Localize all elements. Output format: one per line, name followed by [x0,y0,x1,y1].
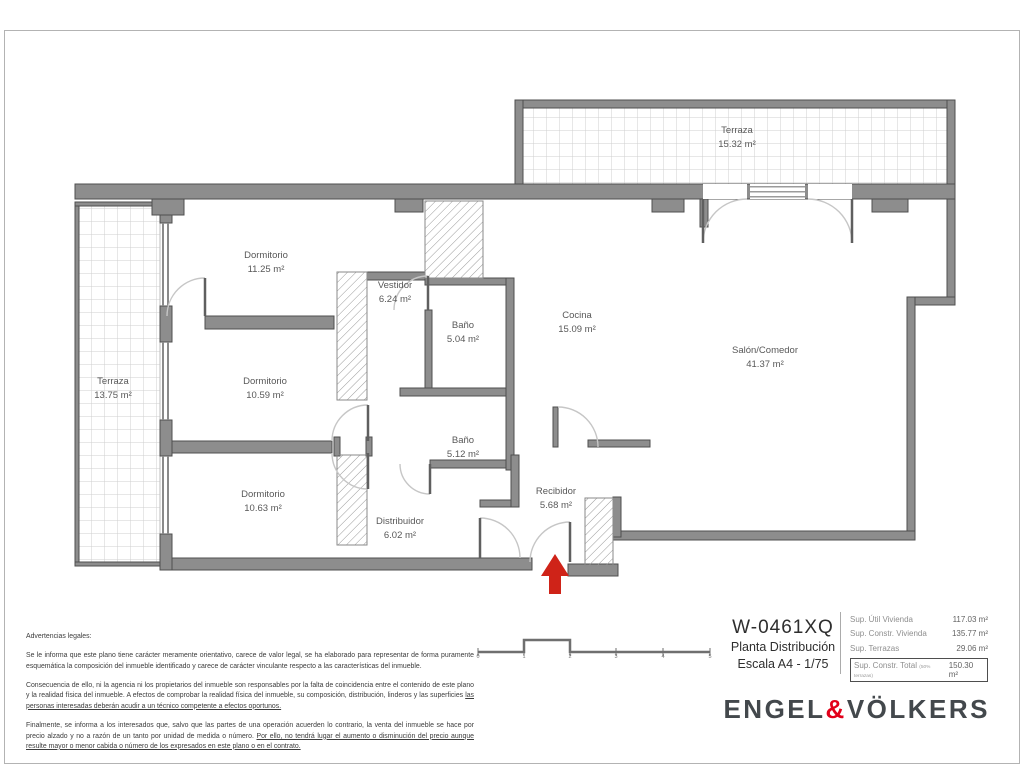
logo-ampersand: & [826,694,847,724]
room-label-dormitorio-1: Dormitorio11.25 m² [244,249,288,276]
legal-paragraph-3: Finalmente, se informa a los interesados… [26,721,474,752]
scale-tick-3: 3 [614,654,617,660]
scale-tick-2: 2 [568,654,571,660]
scale-bar-line [470,625,720,670]
surface-table: Sup. Útil Vivienda 117.03 m² Sup. Constr… [850,612,988,682]
scale-tick-1: 1 [522,654,525,660]
entrance-arrow-icon [541,554,569,594]
legal-paragraph-2: Consecuencia de ello, ni la agencia ni l… [26,681,474,712]
room-label-bano-1: Baño5.04 m² [447,319,479,346]
room-label-dormitorio-3: Dormitorio10.63 m² [241,488,285,515]
surface-row: Sup. Útil Vivienda 117.03 m² [850,612,988,627]
scale-tick-0: 0 [476,654,479,660]
scale-tick-4: 4 [661,654,664,660]
room-label-recibidor: Recibidor5.68 m² [536,485,576,512]
surface-row: Sup. Terrazas 29.06 m² [850,641,988,656]
door-leaves [205,199,852,562]
room-label-vestidor: Vestidor6.24 m² [378,279,412,306]
scale-bar: 0 1 2 3 4 5 [470,625,720,670]
legal-notices: Advertencias legales: Se le informa que … [26,632,474,761]
plan-scale: Escala A4 - 1/75 [700,656,866,673]
engel-volkers-logo: ENGEL&VÖLKERS [723,694,990,725]
plan-title: Planta Distribución [700,639,866,656]
page: Terraza15.32 m² Dormitorio11.25 m² Vesti… [0,0,1024,768]
room-label-salon: Salón/Comedor41.37 m² [732,344,798,371]
room-label-distribuidor: Distribuidor6.02 m² [376,515,424,542]
terrace-openings [703,184,852,199]
info-divider [840,612,841,674]
property-info: W-0461XQ Planta Distribución Escala A4 -… [700,616,866,673]
surface-row: Sup. Constr. Vivienda 135.77 m² [850,627,988,642]
property-reference: W-0461XQ [700,616,866,639]
room-label-terraza-top: Terraza15.32 m² [718,124,756,151]
room-label-bano-2: Baño5.12 m² [447,434,479,461]
room-label-dormitorio-2: Dormitorio10.59 m² [243,375,287,402]
room-label-cocina: Cocina15.09 m² [558,309,596,336]
room-label-terraza-left: Terraza13.75 m² [94,375,132,402]
legal-title: Advertencias legales: [26,632,474,642]
legal-paragraph-1: Se le informa que este plano tiene carác… [26,651,474,672]
facade-windows [162,223,169,534]
surface-total-row: Sup. Constr. Total (50% terrazas) 150.30… [850,658,988,682]
